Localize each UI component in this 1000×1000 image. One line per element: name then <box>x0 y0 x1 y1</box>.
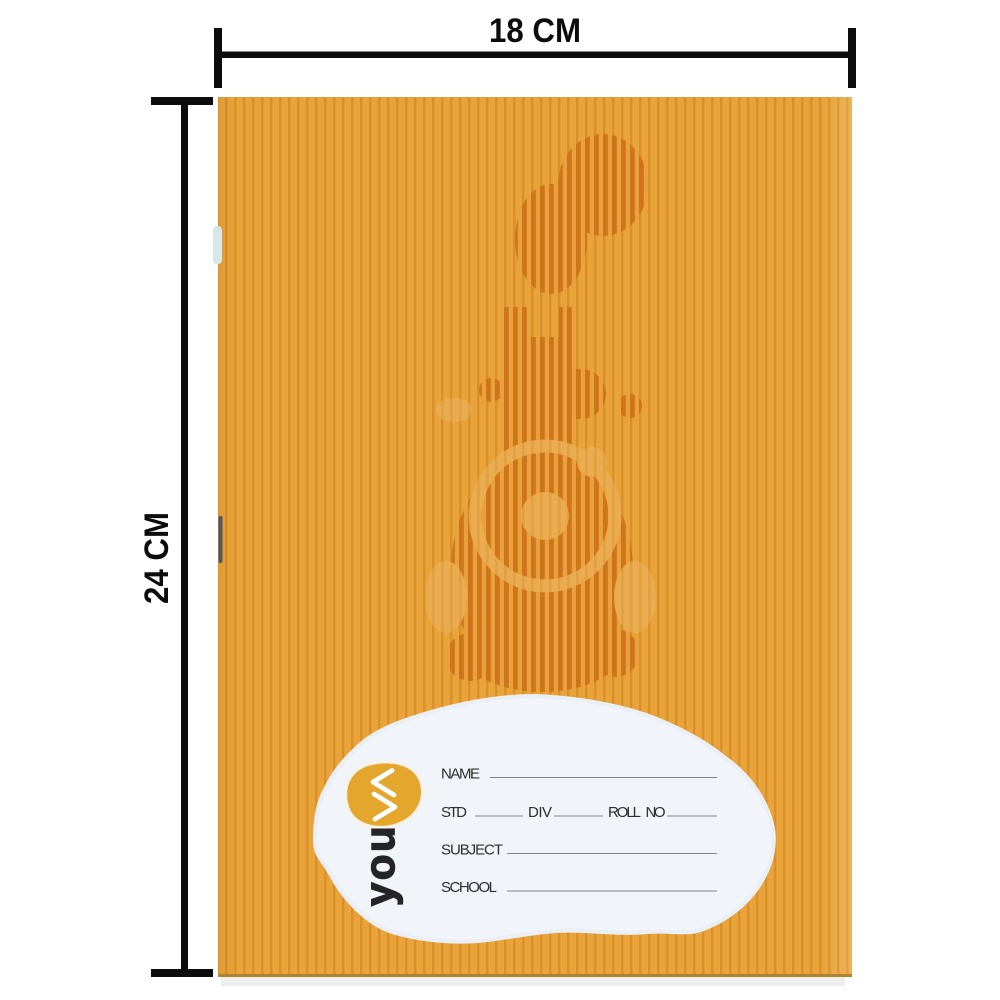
svg-text:SCHOOL: SCHOOL <box>441 879 497 896</box>
svg-text:STD: STD <box>441 804 467 821</box>
svg-text:ROLL: ROLL <box>608 804 641 821</box>
svg-text:you: you <box>356 824 403 906</box>
svg-text:SUBJECT: SUBJECT <box>441 842 503 859</box>
svg-text:DIV: DIV <box>528 804 552 821</box>
svg-text:NO: NO <box>646 804 666 821</box>
svg-text:24 CM: 24 CM <box>138 512 176 604</box>
svg-text:NAME: NAME <box>441 766 480 783</box>
svg-text:18 CM: 18 CM <box>489 12 581 50</box>
